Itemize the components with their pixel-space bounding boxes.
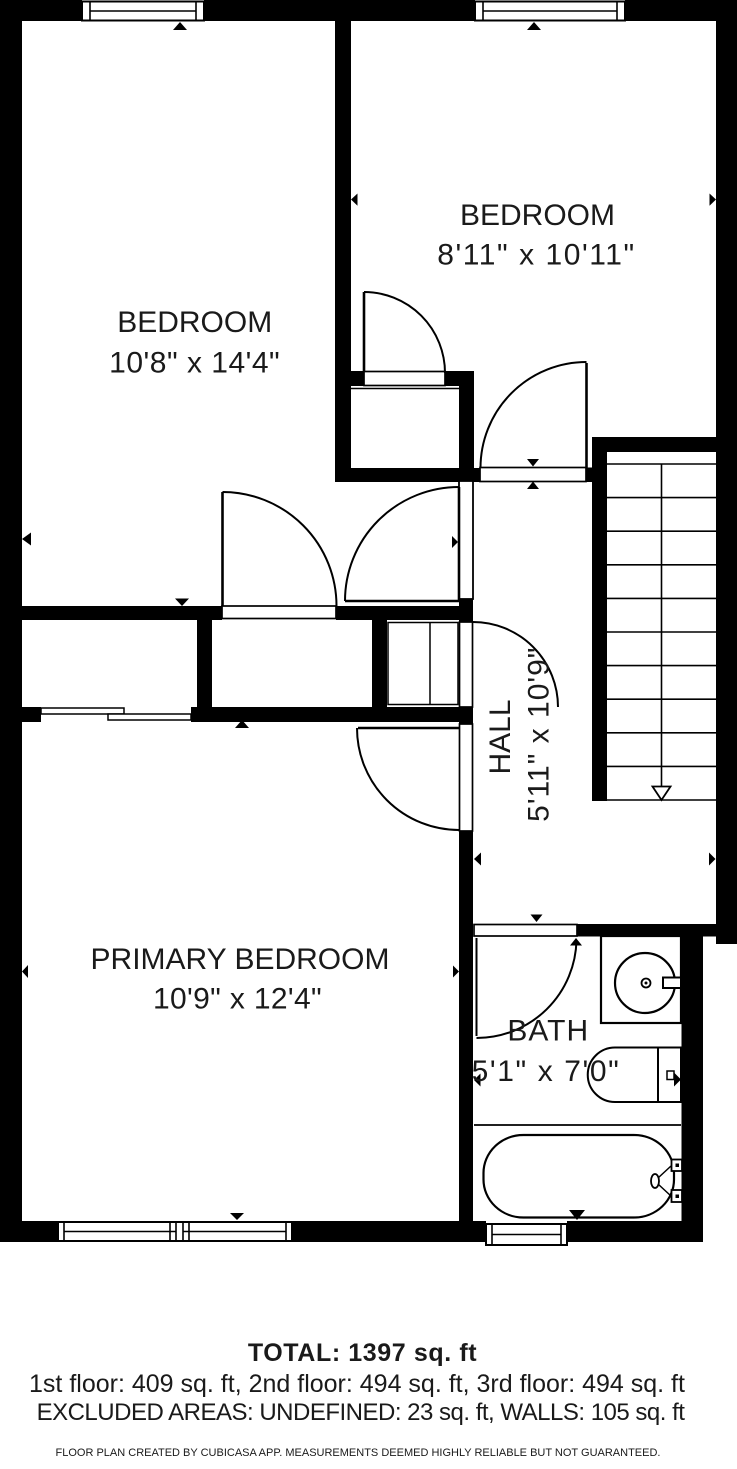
svg-text:5'11" x 10'9": 5'11" x 10'9": [523, 647, 556, 822]
svg-text:8'11" x 10'11": 8'11" x 10'11": [437, 239, 635, 272]
svg-text:10'8" x 14'4": 10'8" x 14'4": [109, 347, 280, 380]
svg-text:BATH: BATH: [507, 1015, 589, 1048]
svg-text:EXCLUDED AREAS: UNDEFINED: 23: EXCLUDED AREAS: UNDEFINED: 23 sq. ft, WA…: [37, 1399, 686, 1426]
svg-text:5'1" x 7'0": 5'1" x 7'0": [472, 1055, 621, 1088]
svg-text:FLOOR PLAN CREATED BY CUBICASA: FLOOR PLAN CREATED BY CUBICASA APP. MEAS…: [56, 1447, 661, 1459]
svg-text:BEDROOM: BEDROOM: [117, 306, 272, 339]
svg-text:1st floor: 409 sq. ft, 2nd flo: 1st floor: 409 sq. ft, 2nd floor: 494 sq…: [29, 1370, 685, 1398]
svg-text:BEDROOM: BEDROOM: [460, 199, 615, 232]
svg-text:10'9" x 12'4": 10'9" x 12'4": [153, 983, 322, 1016]
svg-text:TOTAL: 1397 sq. ft: TOTAL: 1397 sq. ft: [248, 1339, 477, 1367]
svg-text:HALL: HALL: [484, 699, 517, 774]
svg-text:PRIMARY BEDROOM: PRIMARY BEDROOM: [91, 943, 390, 976]
